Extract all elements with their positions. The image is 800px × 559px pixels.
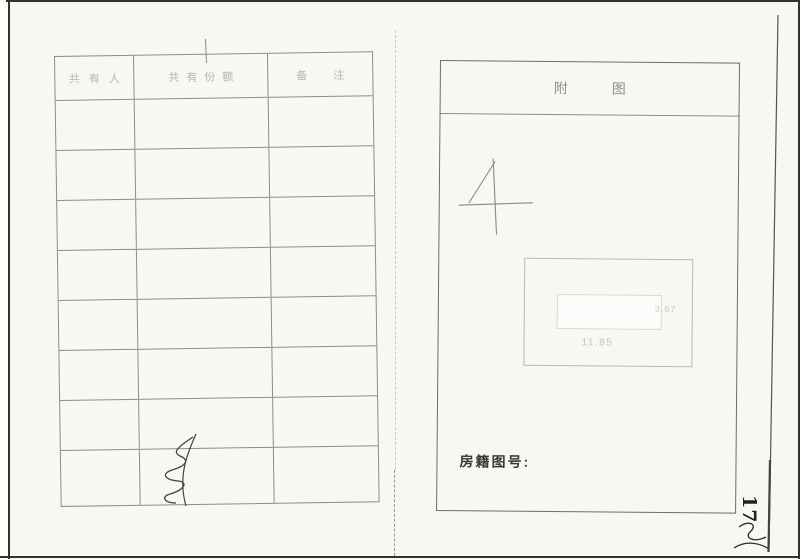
table-row <box>61 445 379 506</box>
scan-edge-left <box>8 0 10 559</box>
scan-left-margin <box>0 0 8 559</box>
attached-drawing-header: 附图 <box>441 61 739 117</box>
table-cell <box>56 150 135 200</box>
table-cell <box>56 100 135 150</box>
floorplan-side-dimension: 3.67 <box>655 304 677 314</box>
table-cell <box>58 250 137 300</box>
table-cell <box>137 298 273 349</box>
page-fold-line-lower <box>394 470 395 556</box>
floorplan-outline: 3.67 11.85 <box>523 258 693 367</box>
table-row <box>58 245 376 300</box>
table-cell <box>271 246 376 297</box>
table-cell <box>134 98 270 149</box>
table-cell <box>57 200 136 250</box>
table-cell <box>60 400 139 450</box>
table-cell <box>269 96 374 147</box>
table-cell <box>138 398 274 449</box>
table-cell <box>273 396 378 447</box>
coowner-table: 共有人 共有份额 备注 <box>54 51 380 507</box>
house-registry-number-label: 房籍图号: <box>459 451 530 472</box>
attached-drawing-page: 附图 3.67 11.85 房籍图号: <box>436 60 740 514</box>
table-cell <box>59 350 138 400</box>
table-header-row: 共有人 共有份额 备注 <box>55 52 373 100</box>
handwritten-check-mark-tail <box>734 543 769 549</box>
page-fold-line <box>395 30 396 470</box>
scanned-book-spread: 共有人 共有份额 备注 <box>0 0 800 559</box>
handwritten-check-mark <box>739 523 766 540</box>
scan-edge-bottom <box>0 556 800 558</box>
scan-edge-top <box>6 0 800 2</box>
page-number: 17 <box>731 495 767 519</box>
scan-line-artifact-thick <box>769 460 771 552</box>
table-cell <box>274 446 379 503</box>
table-cell <box>135 198 271 249</box>
header-coowner: 共有人 <box>55 56 134 100</box>
attached-drawing-title: 附图 <box>554 78 670 99</box>
table-row <box>59 345 377 400</box>
floorplan-room <box>557 294 662 330</box>
table-cell <box>61 450 140 506</box>
header-remarks: 备注 <box>268 52 373 97</box>
table-row <box>60 395 378 450</box>
table-cell <box>136 248 272 299</box>
floorplan-bottom-dimension: 11.85 <box>581 337 613 348</box>
table-cell <box>59 300 138 350</box>
table-row <box>57 195 375 250</box>
table-cell <box>270 196 375 247</box>
table-row <box>56 145 374 200</box>
scan-line-artifact <box>769 15 778 548</box>
table-cell <box>139 448 275 505</box>
table-cell <box>269 146 374 197</box>
coowner-table-body <box>56 95 379 506</box>
table-row <box>56 95 374 150</box>
table-cell <box>134 148 270 199</box>
table-cell <box>137 348 273 399</box>
header-share: 共有份额 <box>133 54 269 99</box>
table-row <box>59 295 377 350</box>
table-cell <box>272 346 377 397</box>
table-cell <box>272 296 377 347</box>
